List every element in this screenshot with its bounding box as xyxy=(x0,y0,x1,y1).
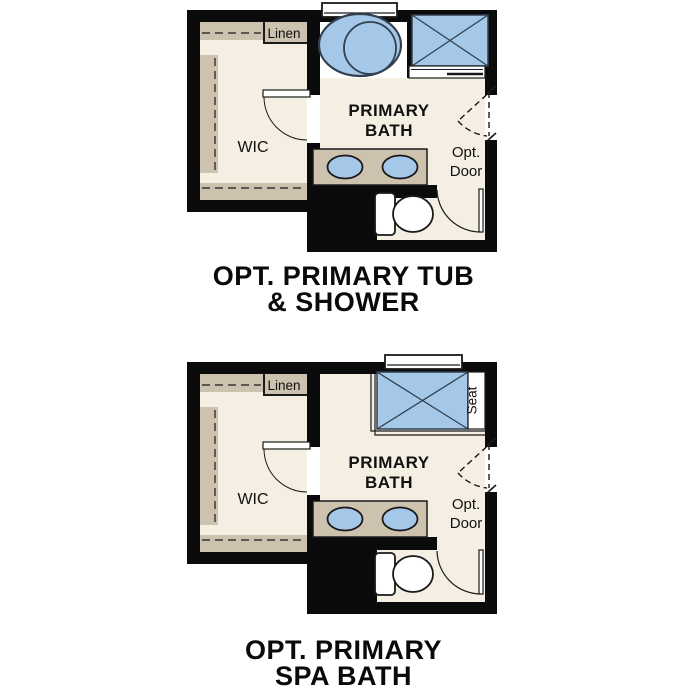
wall-toilet-top xyxy=(377,537,437,550)
wic-door-leaf xyxy=(263,90,310,97)
room-label-line1: PRIMARY xyxy=(348,101,429,120)
shelf-bottom xyxy=(200,535,307,552)
wall-bottom xyxy=(307,602,497,614)
sink-right xyxy=(383,508,418,531)
sink-right xyxy=(383,156,418,179)
plan-title-line1: OPT. PRIMARY xyxy=(0,637,687,663)
toilet-tank xyxy=(375,193,395,235)
toilet-bowl xyxy=(393,196,433,232)
plan-title-tub-shower: OPT. PRIMARY TUB & SHOWER xyxy=(0,263,687,315)
shelf-top xyxy=(200,22,263,40)
window xyxy=(385,355,462,369)
opt-door-label-line2: Door xyxy=(450,515,483,532)
opt-door-label-line2: Door xyxy=(450,163,483,180)
wic-label: WIC xyxy=(237,139,268,156)
wic-door-leaf xyxy=(263,442,310,449)
wall-left xyxy=(187,10,200,212)
wall-wic-bottom xyxy=(187,552,320,564)
wall-right-upper xyxy=(485,362,497,447)
wall-right-lower xyxy=(485,492,497,614)
room-label-line1: PRIMARY xyxy=(348,453,429,472)
sink-left xyxy=(328,156,363,179)
shower-curb xyxy=(409,66,485,78)
room-label-line2: BATH xyxy=(365,121,413,140)
room-label-line2: BATH xyxy=(365,473,413,492)
shelf-top xyxy=(200,374,263,392)
opt-door-label-line1: Opt. xyxy=(452,496,480,513)
seat-label: Seat xyxy=(465,386,480,414)
plan-title-line2: SPA BATH xyxy=(0,663,687,689)
floor-plan-spa-bath: Linen WIC PRIMARY BATH Opt. Door Seat xyxy=(185,352,497,614)
wall-divider-upper xyxy=(307,10,320,95)
floor-plan-tub-shower: Linen WIC PRIMARY BATH Opt. Door xyxy=(185,0,497,252)
opt-door-label-line1: Opt. xyxy=(452,144,480,161)
wall-wic-bottom xyxy=(187,200,320,212)
toilet-door-leaf xyxy=(479,550,483,594)
plan-title-line1: OPT. PRIMARY TUB xyxy=(0,263,687,289)
linen-label: Linen xyxy=(267,26,300,41)
linen-label: Linen xyxy=(267,378,300,393)
wall-right-lower xyxy=(485,140,497,252)
plan-title-spa-bath: OPT. PRIMARY SPA BATH xyxy=(0,637,687,689)
shelf-bottom xyxy=(200,183,307,200)
toilet-door-leaf xyxy=(479,189,483,232)
wall-divider-upper xyxy=(307,362,320,447)
plan-title-line2: & SHOWER xyxy=(0,289,687,315)
sink-left xyxy=(328,508,363,531)
floor-plans-figure: Linen WIC PRIMARY BATH Opt. Door OPT. PR… xyxy=(0,0,687,687)
wall-left xyxy=(187,362,200,564)
wall-bottom xyxy=(307,240,497,252)
toilet-tank xyxy=(375,553,395,595)
toilet-bowl xyxy=(393,556,433,592)
wic-label: WIC xyxy=(237,491,268,508)
